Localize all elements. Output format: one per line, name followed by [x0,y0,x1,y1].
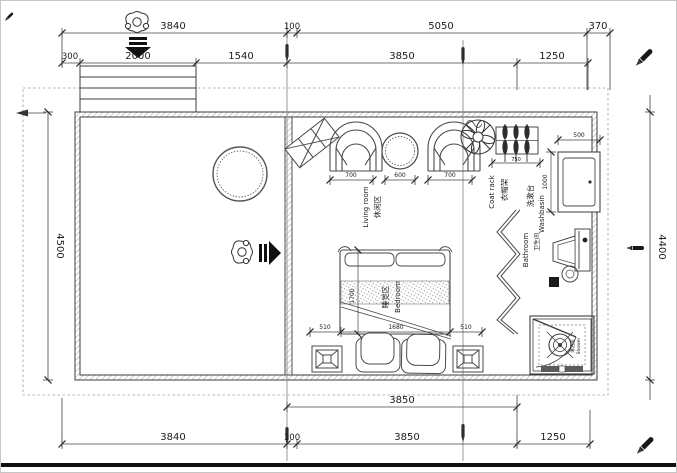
washbasin-label-en: Washbasin [538,195,546,233]
coat-rack-label-cn: 衣帽架 [499,178,509,201]
dim-label: 3850 [389,395,414,406]
bedroom-label-cn: 睡觉区 [380,285,390,308]
dim-label: 3850 [394,432,419,443]
dim-label: 3840 [160,432,185,443]
bathroom-label-en: Bathroom [522,233,530,268]
dim-label: 1680 [388,324,403,331]
coat-rack-label-en: Coat rack [488,174,496,208]
floor-plan-drawing: 3840 100 5050 370 300 2000 1540 3850 125… [0,0,677,473]
person-icon [125,12,148,33]
dim-label: 4500 [54,233,65,258]
shower-label-en: Shower [576,337,582,354]
shower-label-cn: 淋浴房 [569,339,576,353]
side-table [453,346,483,372]
dim-label: 300 [62,52,78,62]
dim-label: 1250 [539,51,564,62]
dim-label: 1540 [228,51,253,62]
living-room-label-en: Living room [362,186,370,227]
dim-label: 3850 [389,51,414,62]
dim-label: 600 [394,172,406,179]
dim-label: 500 [573,132,585,139]
dim-label: 1250 [540,432,565,443]
ottoman [356,333,400,372]
dim-label: 100 [284,433,300,443]
ottoman [401,334,446,374]
dim-label: 5050 [428,21,453,32]
dim-label: 1700 [349,288,356,303]
ceiling-fan-icon [461,120,496,155]
dim-label: 700 [345,172,357,179]
living-room-label-cn: 休闲区 [372,195,382,218]
dim-label: 4400 [656,234,667,259]
dim-label: 750 [511,157,521,163]
dim-label: 510 [460,324,472,331]
entry-steps [80,66,196,112]
side-table [312,346,342,372]
dim-label: 3840 [160,21,185,32]
bedroom-label-en: Bedroom [394,281,402,313]
dim-label: 100 [284,22,300,32]
dim-label: 700 [444,172,456,179]
floor-plan: 3840 100 5050 370 300 2000 1540 3850 125… [0,0,677,473]
bathroom-label-cn: 卫生间 [533,233,541,251]
person-icon [232,240,253,263]
washbasin-label-cn: 洗漱台 [525,185,535,208]
dim-label: 510 [319,324,331,331]
dim-label: 370 [588,21,607,32]
footer-bar [1,463,676,467]
dim-label: 1000 [542,174,549,189]
